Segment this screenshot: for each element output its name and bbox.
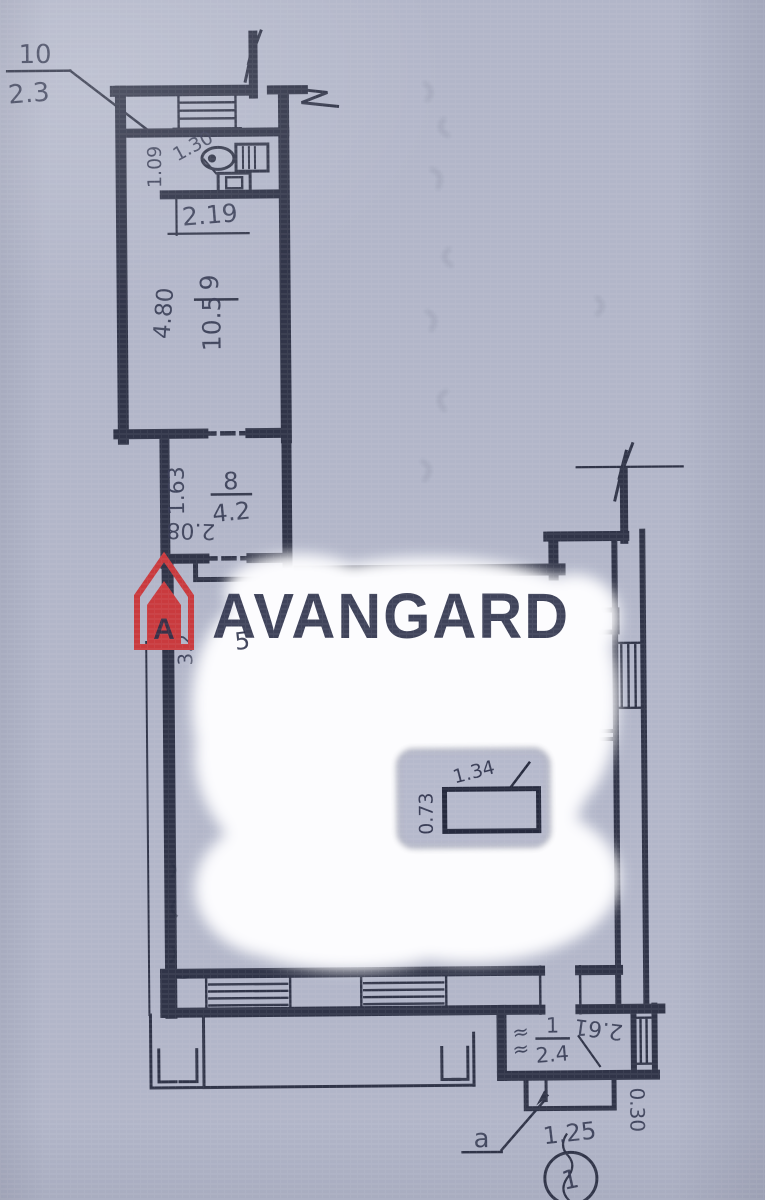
unit-area-label: 2.3	[7, 77, 51, 110]
callout-leader-line	[70, 70, 148, 131]
dim-line	[169, 233, 249, 234]
dim-208: 2.08	[166, 517, 216, 543]
dim-480: 4.80	[149, 287, 179, 340]
approx-mark: ≈	[511, 1036, 531, 1062]
window-right	[615, 643, 644, 708]
dim-163: 1.63	[165, 466, 190, 515]
sink-icon	[218, 173, 250, 192]
extension-line	[577, 466, 683, 467]
svg-text:A: A	[153, 613, 175, 646]
callout-leader-line	[501, 1100, 545, 1150]
room9-number: 9	[195, 274, 224, 290]
dim-109: 1.09	[144, 146, 166, 189]
floor-plan-drawing: 10 2.3 1.30 1.09 2.19 4.80 9 10.5 1.63 2…	[0, 0, 765, 1200]
dim-125: 1.25	[542, 1116, 598, 1150]
dim-261: 2.61	[573, 1013, 625, 1044]
dim-219: 2.19	[181, 198, 239, 231]
room9-area: 10.5	[197, 295, 226, 351]
room9-bottom-wall	[118, 433, 286, 434]
wc-block-walls	[115, 35, 307, 440]
bleed-through-marks	[419, 82, 603, 480]
vestibule-area: 2.4	[535, 1041, 570, 1068]
site-line	[146, 642, 149, 1015]
window-bottom-2	[361, 976, 446, 1007]
dim-030: 0.30	[625, 1087, 649, 1132]
vestibule-number: 1	[546, 1013, 560, 1037]
window-top	[173, 94, 240, 129]
window-bottom-1	[206, 978, 290, 1009]
axis-number: 1	[559, 1164, 582, 1197]
room8-area: 4.2	[211, 497, 252, 529]
left-porch	[150, 1015, 204, 1088]
unit-number-label: 10	[18, 40, 51, 70]
avangard-wordmark: AVANGARD	[212, 580, 570, 652]
wc-divider-wall	[164, 194, 284, 195]
terrace-outline	[204, 1033, 474, 1087]
dim-073: 0.73	[416, 792, 438, 835]
room8-number: 8	[223, 467, 239, 495]
porch-letter: a	[473, 1124, 489, 1154]
scanned-floor-plan-page: 10 2.3 1.30 1.09 2.19 4.80 9 10.5 1.63 2…	[0, 0, 765, 1200]
